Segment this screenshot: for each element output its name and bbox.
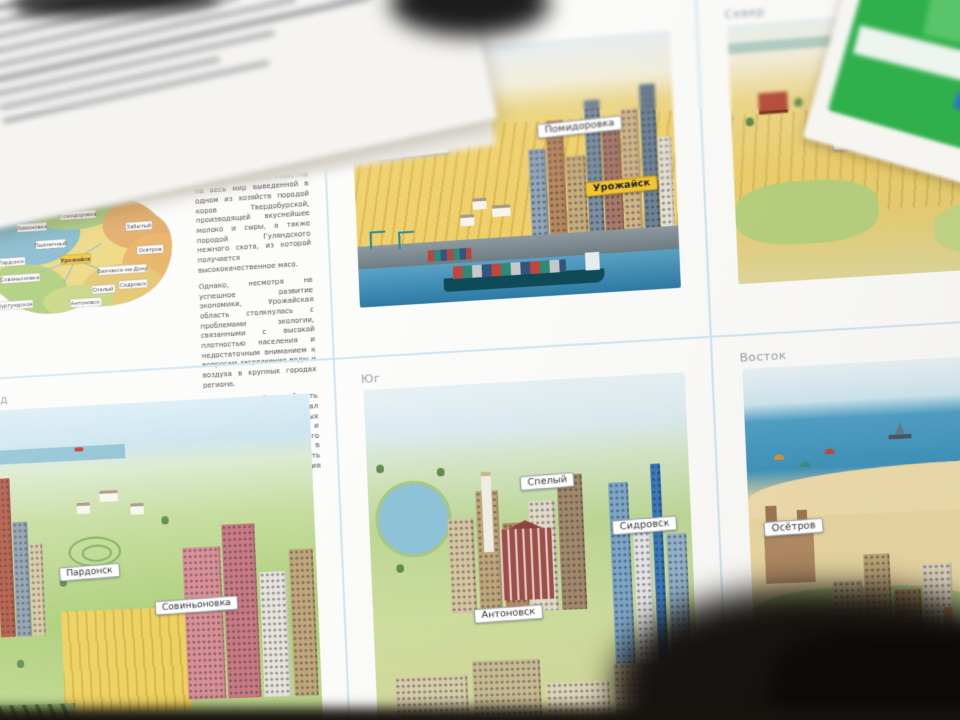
building bbox=[259, 571, 292, 697]
crane-icon bbox=[398, 231, 415, 250]
city-skyline bbox=[0, 476, 49, 638]
house bbox=[473, 198, 487, 210]
building bbox=[528, 148, 550, 241]
sea-strip bbox=[0, 444, 125, 467]
boat-icon bbox=[74, 447, 83, 452]
city-skyline bbox=[523, 82, 679, 241]
building bbox=[13, 522, 32, 637]
tree-icon bbox=[396, 564, 404, 572]
crane-icon bbox=[369, 230, 386, 249]
building bbox=[557, 474, 587, 610]
dark-foreground bbox=[770, 630, 960, 720]
building bbox=[288, 549, 319, 696]
west-panel: Запад bbox=[0, 358, 361, 720]
tree-icon bbox=[17, 659, 24, 666]
building bbox=[29, 543, 46, 636]
building bbox=[546, 120, 567, 239]
house bbox=[460, 214, 474, 226]
building bbox=[182, 546, 226, 699]
svg-text:Антоновск: Антоновск bbox=[71, 300, 100, 308]
ship-bridge bbox=[584, 252, 599, 270]
tree-icon bbox=[795, 98, 803, 106]
resort-house bbox=[130, 503, 144, 515]
yellow-field bbox=[61, 607, 192, 715]
barn bbox=[759, 91, 788, 114]
tree-icon bbox=[161, 516, 168, 523]
town-label: Пардонск bbox=[59, 563, 120, 582]
west-illustration: Пардонск Совиньоновка bbox=[0, 393, 334, 720]
resort-house bbox=[99, 490, 118, 502]
theater bbox=[500, 528, 554, 601]
building bbox=[565, 156, 588, 239]
building bbox=[221, 524, 261, 698]
dark-foreground-edge bbox=[0, 708, 960, 720]
pond bbox=[374, 479, 453, 559]
tree-icon bbox=[376, 465, 384, 473]
resort-house bbox=[77, 503, 91, 515]
building bbox=[658, 136, 676, 232]
house bbox=[492, 204, 511, 217]
svg-text:Спелый: Спелый bbox=[92, 286, 114, 294]
desk-photo: Урожайская область История региона Урожа… bbox=[0, 0, 960, 720]
building bbox=[448, 519, 478, 615]
